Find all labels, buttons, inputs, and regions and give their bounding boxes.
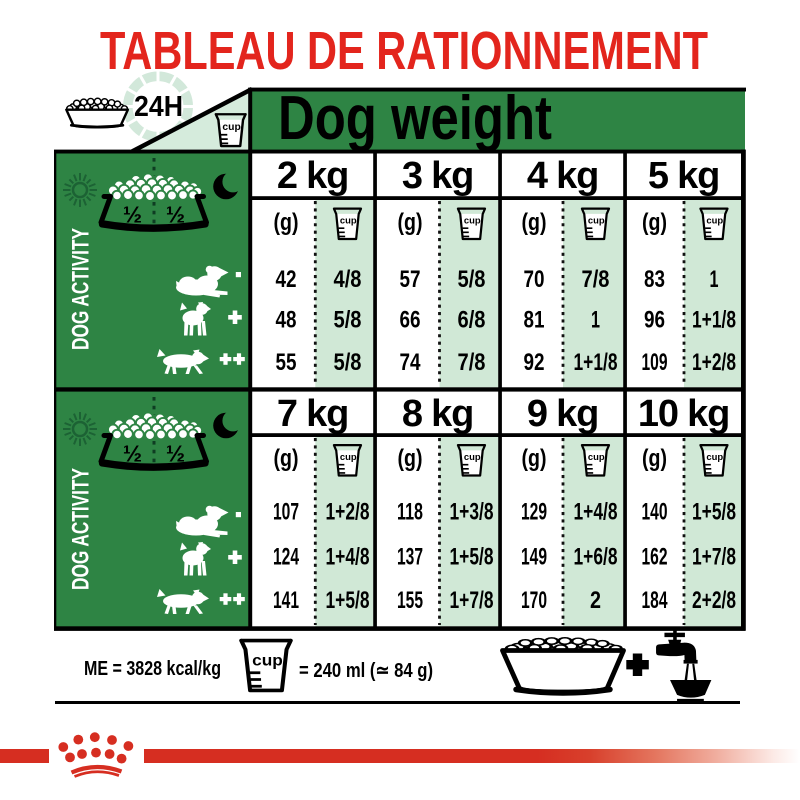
svg-text:1+5/8: 1+5/8 [326, 587, 370, 614]
svg-text:1+6/8: 1+6/8 [574, 544, 618, 571]
svg-text:66: 66 [400, 307, 421, 334]
svg-text:1+1/8: 1+1/8 [574, 349, 618, 376]
svg-text:5/8: 5/8 [334, 349, 362, 376]
svg-text:10 kg: 10 kg [638, 393, 729, 435]
svg-text:5 kg: 5 kg [648, 155, 719, 197]
svg-text:57: 57 [400, 266, 421, 293]
svg-text:48: 48 [276, 307, 297, 334]
svg-text:(g): (g) [642, 209, 667, 236]
svg-text:42: 42 [276, 266, 297, 293]
svg-text:170: 170 [521, 587, 547, 614]
svg-text:1+2/8: 1+2/8 [692, 349, 736, 376]
svg-text:1+4/8: 1+4/8 [326, 544, 370, 571]
svg-text:1+7/8: 1+7/8 [692, 544, 736, 571]
svg-text:96: 96 [644, 307, 665, 334]
svg-text:5/8: 5/8 [458, 266, 486, 293]
svg-text:162: 162 [642, 544, 668, 571]
svg-text:TABLEAU DE RATIONNEMENT: TABLEAU DE RATIONNEMENT [100, 21, 708, 81]
svg-text:6/8: 6/8 [458, 307, 486, 334]
svg-text:4/8: 4/8 [334, 266, 362, 293]
svg-text:(g): (g) [398, 445, 423, 472]
svg-text:107: 107 [273, 499, 299, 526]
svg-text:1+5/8: 1+5/8 [450, 544, 494, 571]
svg-text:83: 83 [644, 266, 665, 293]
svg-text:½: ½ [123, 202, 142, 228]
svg-text:1: 1 [710, 266, 719, 293]
svg-text:(g): (g) [522, 209, 547, 236]
svg-text:70: 70 [524, 266, 545, 293]
svg-text:7/8: 7/8 [582, 266, 610, 293]
svg-text:½: ½ [123, 441, 142, 467]
svg-text:1+1/8: 1+1/8 [692, 307, 736, 334]
svg-text:2: 2 [590, 587, 601, 614]
svg-text:55: 55 [276, 349, 297, 376]
svg-text:1+5/8: 1+5/8 [692, 499, 736, 526]
svg-text:1+2/8: 1+2/8 [326, 499, 370, 526]
svg-text:= 240 ml (≃ 84 g): = 240 ml (≃ 84 g) [299, 659, 433, 682]
svg-text:9 kg: 9 kg [527, 393, 598, 435]
svg-text:2 kg: 2 kg [277, 155, 348, 197]
svg-text:½: ½ [166, 202, 185, 228]
svg-text:24H: 24H [134, 91, 183, 123]
svg-text:(g): (g) [522, 445, 547, 472]
svg-text:1: 1 [591, 307, 600, 334]
svg-text:7/8: 7/8 [458, 349, 486, 376]
svg-text:1+3/8: 1+3/8 [450, 499, 494, 526]
svg-text:(g): (g) [274, 445, 299, 472]
svg-text:141: 141 [273, 587, 299, 614]
svg-text:4 kg: 4 kg [527, 155, 598, 197]
svg-text:1+7/8: 1+7/8 [450, 587, 494, 614]
svg-text:(g): (g) [642, 445, 667, 472]
svg-text:140: 140 [642, 499, 668, 526]
svg-text:74: 74 [400, 349, 422, 376]
svg-text:118: 118 [397, 499, 423, 526]
svg-text:ME = 3828 kcal/kg: ME = 3828 kcal/kg [84, 657, 221, 680]
svg-text:8 kg: 8 kg [402, 393, 473, 435]
svg-text:1+4/8: 1+4/8 [574, 499, 618, 526]
svg-text:149: 149 [521, 544, 547, 571]
svg-text:3 kg: 3 kg [402, 155, 473, 197]
svg-text:7 kg: 7 kg [277, 393, 348, 435]
svg-text:92: 92 [524, 349, 545, 376]
svg-text:109: 109 [642, 349, 668, 376]
svg-text:5/8: 5/8 [334, 307, 362, 334]
svg-text:(g): (g) [398, 209, 423, 236]
svg-text:137: 137 [397, 544, 423, 571]
svg-text:81: 81 [524, 307, 545, 334]
svg-text:½: ½ [166, 441, 185, 467]
svg-text:129: 129 [521, 499, 547, 526]
svg-text:184: 184 [642, 587, 668, 614]
svg-text:124: 124 [273, 544, 299, 571]
svg-text:DOG ACTIVITY: DOG ACTIVITY [68, 468, 95, 590]
svg-text:(g): (g) [274, 209, 299, 236]
svg-text:2+2/8: 2+2/8 [692, 587, 736, 614]
svg-text:155: 155 [397, 587, 423, 614]
svg-text:Dog weight: Dog weight [278, 84, 552, 153]
svg-text:DOG ACTIVITY: DOG ACTIVITY [68, 228, 95, 350]
